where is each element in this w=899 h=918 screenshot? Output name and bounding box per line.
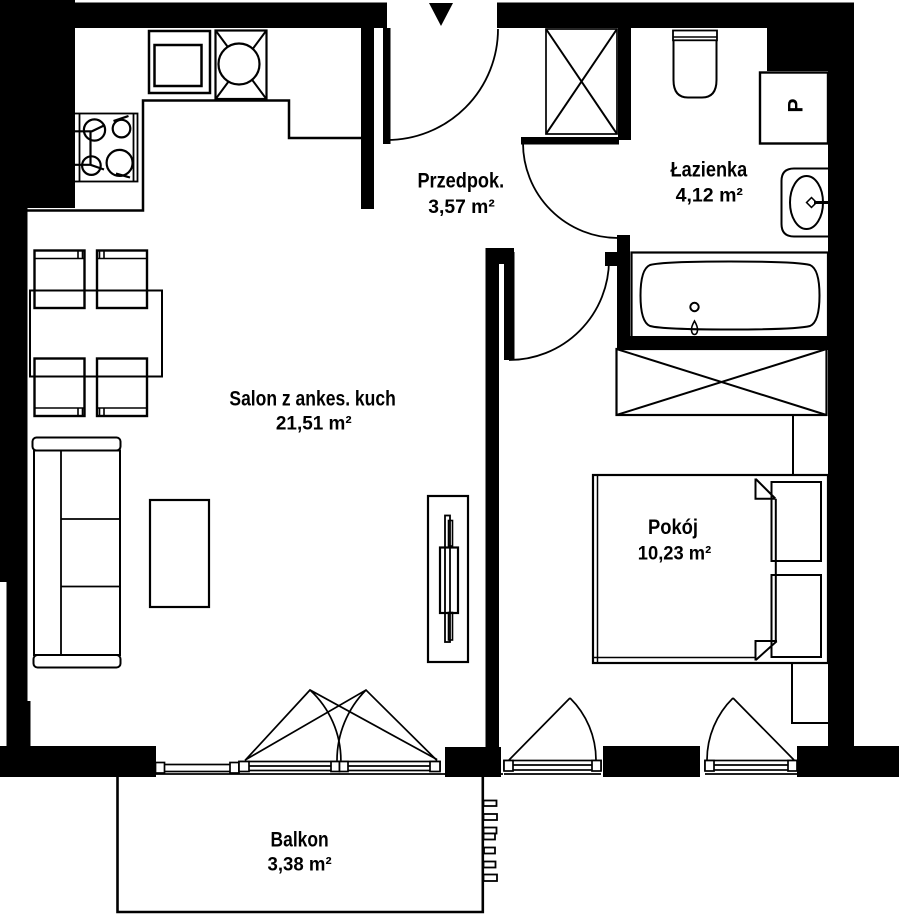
svg-text:P: P [784, 98, 807, 112]
svg-text:Przedpok.: Przedpok. [417, 170, 504, 193]
svg-text:4,12 m²: 4,12 m² [676, 186, 743, 207]
svg-text:10,23 m²: 10,23 m² [638, 543, 711, 564]
svg-text:Salon z ankes. kuch: Salon z ankes. kuch [229, 387, 395, 410]
svg-text:3,38 m²: 3,38 m² [268, 855, 332, 876]
svg-text:Łazienka: Łazienka [671, 159, 748, 182]
svg-text:Balkon: Balkon [271, 829, 329, 852]
svg-text:3,57 m²: 3,57 m² [428, 197, 495, 218]
svg-text:Pokój: Pokój [648, 516, 698, 539]
svg-text:21,51 m²: 21,51 m² [276, 413, 352, 434]
